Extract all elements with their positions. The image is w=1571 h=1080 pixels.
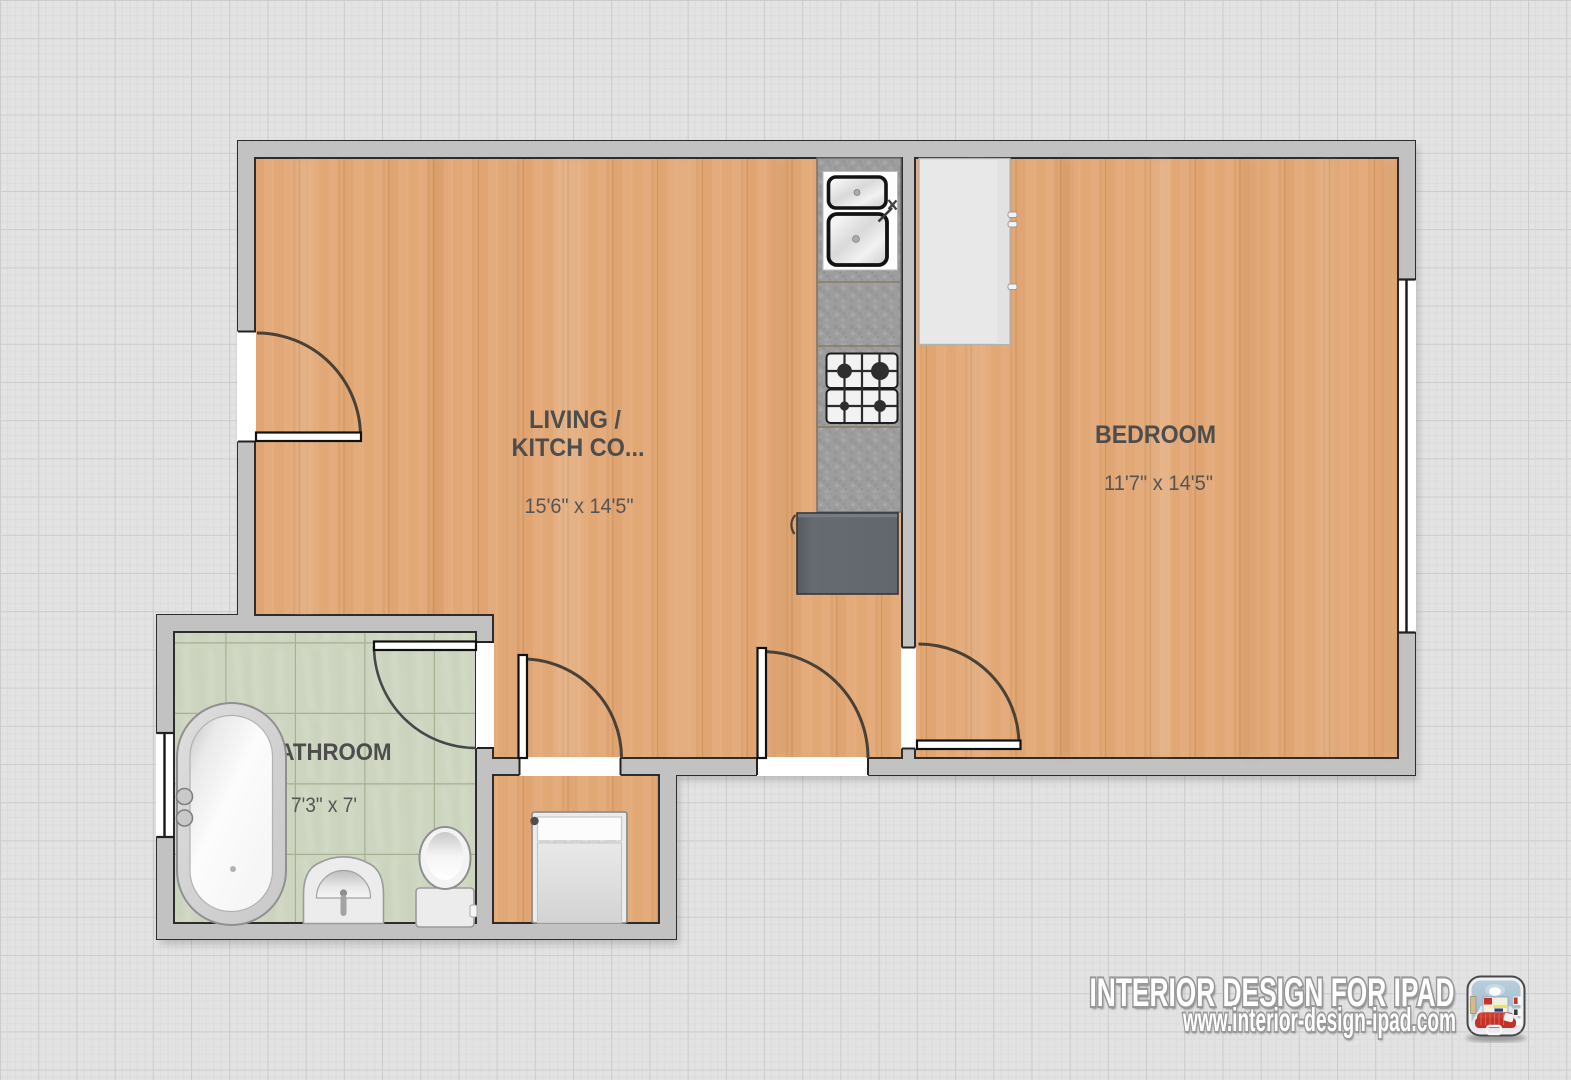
svg-text:www.interior-design-ipad.com: www.interior-design-ipad.com	[1182, 1001, 1456, 1038]
svg-text:11'7" x 14'5": 11'7" x 14'5"	[1104, 471, 1213, 495]
svg-text:KITCH CO...: KITCH CO...	[512, 434, 645, 462]
svg-text:15'6" x 14'5": 15'6" x 14'5"	[525, 494, 634, 518]
svg-text:LIVING /: LIVING /	[529, 406, 621, 434]
svg-text:7'3" x 7': 7'3" x 7'	[291, 793, 357, 817]
svg-text:BEDROOM: BEDROOM	[1095, 421, 1216, 449]
